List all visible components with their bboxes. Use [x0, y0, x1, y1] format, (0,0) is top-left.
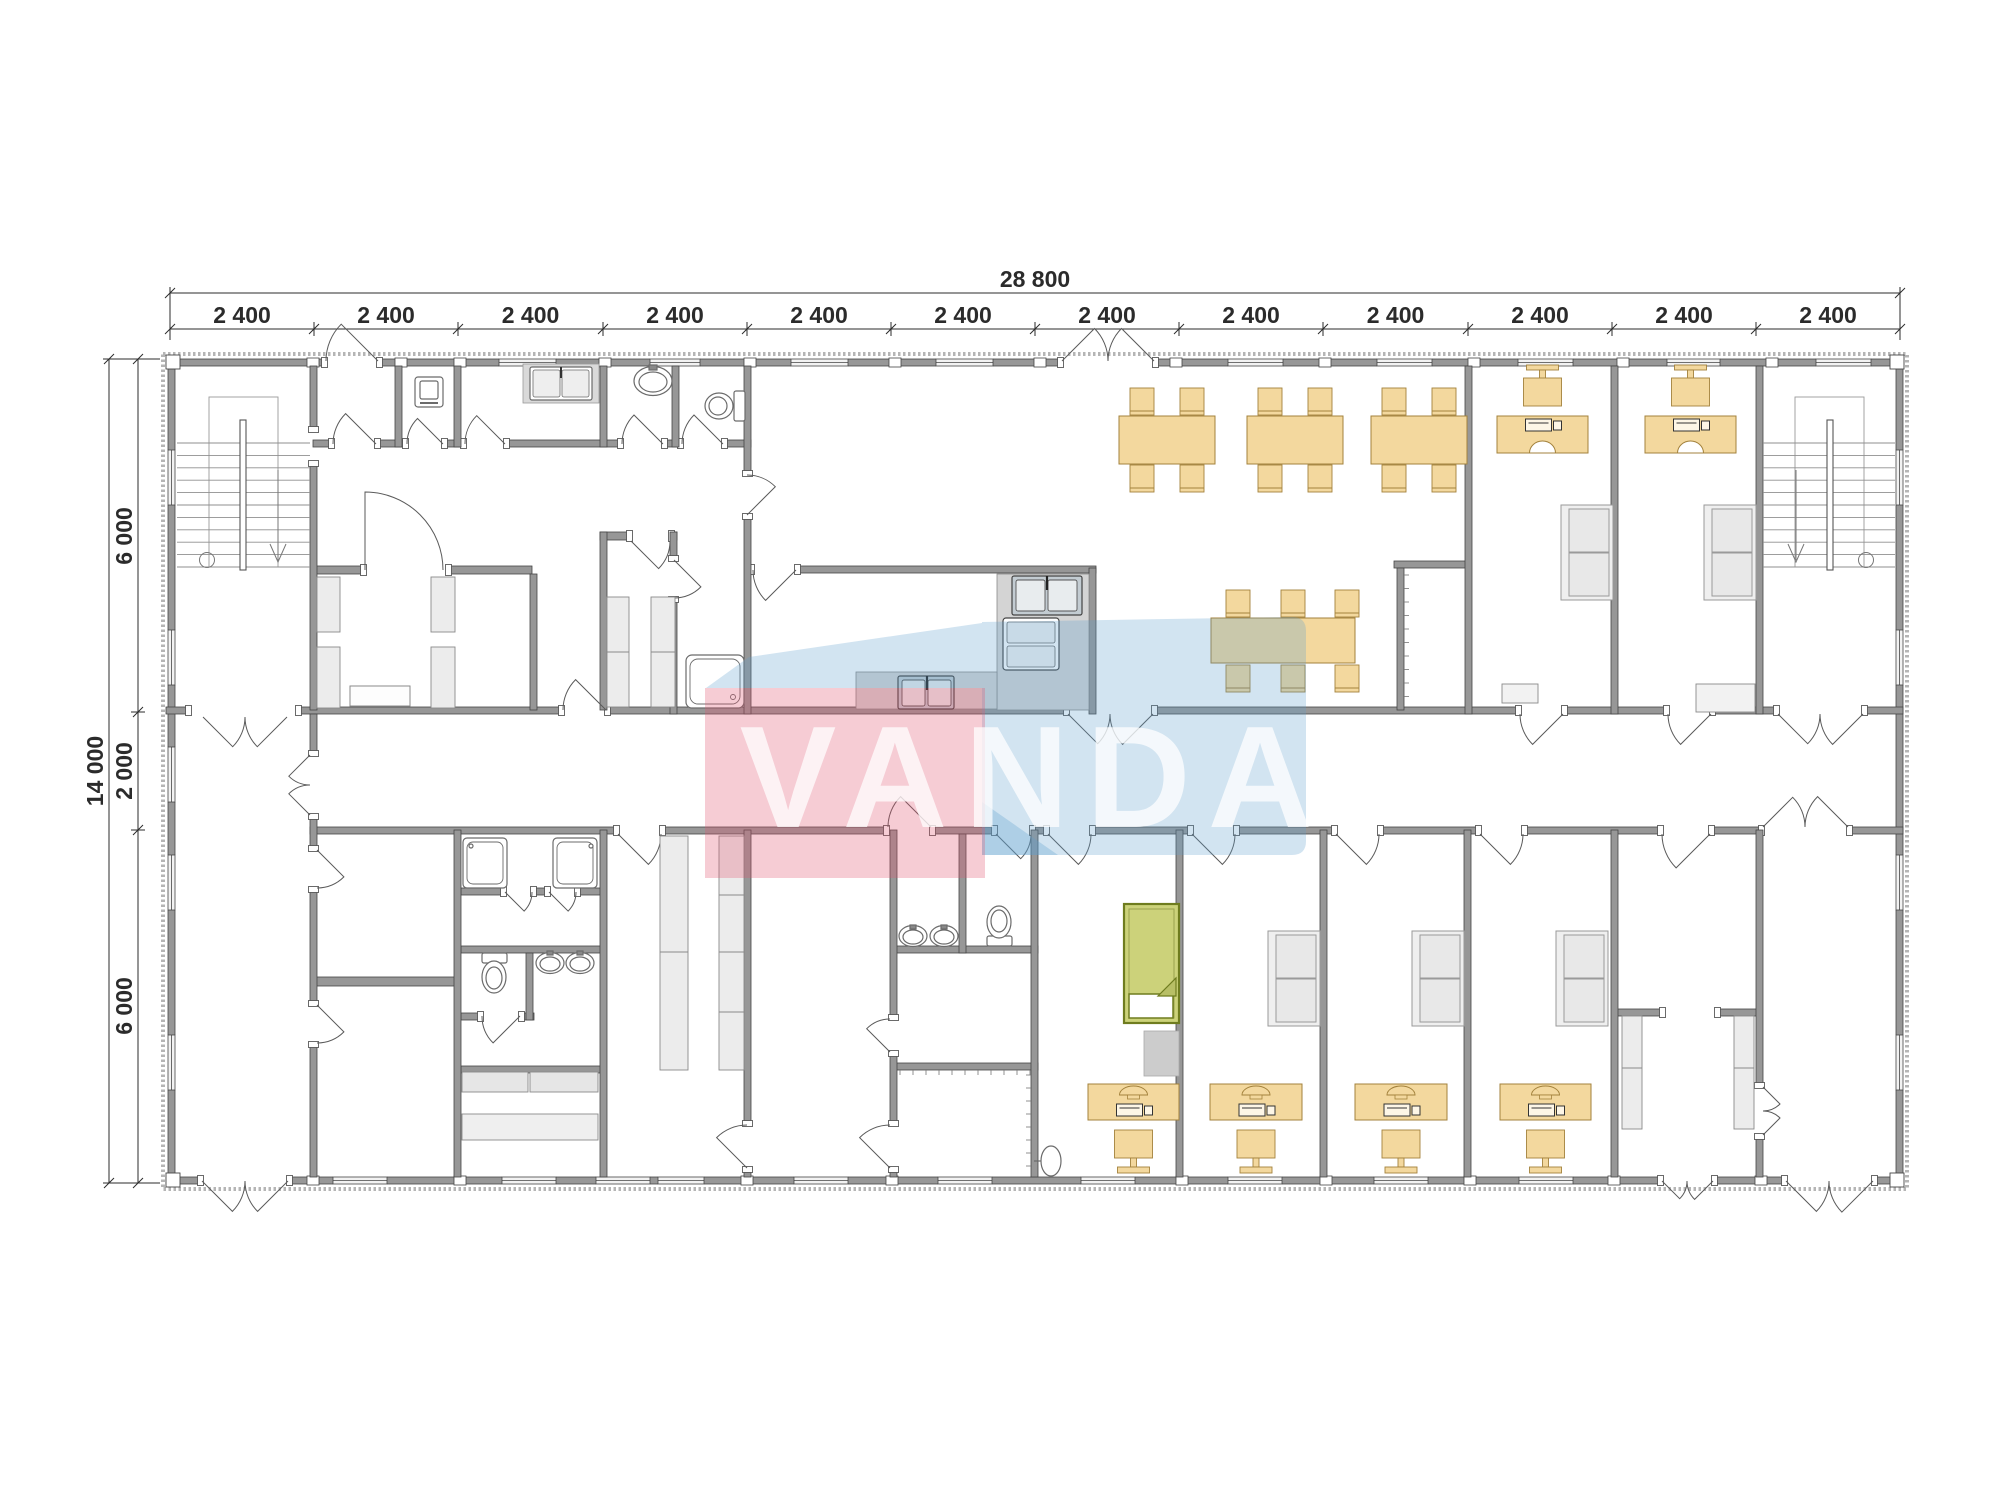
- svg-text:2 400: 2 400: [1078, 302, 1136, 328]
- svg-text:VANDA: VANDA: [740, 696, 1330, 858]
- svg-text:2 400: 2 400: [357, 302, 415, 328]
- svg-text:2 400: 2 400: [1511, 302, 1569, 328]
- svg-text:2 400: 2 400: [1222, 302, 1280, 328]
- svg-text:2 400: 2 400: [646, 302, 704, 328]
- svg-text:6 000: 6 000: [111, 977, 137, 1035]
- svg-text:2 400: 2 400: [213, 302, 271, 328]
- svg-text:2 000: 2 000: [111, 742, 137, 800]
- svg-text:28 800: 28 800: [1000, 266, 1070, 292]
- svg-text:14 000: 14 000: [82, 736, 108, 806]
- svg-text:6 000: 6 000: [111, 507, 137, 565]
- svg-text:2 400: 2 400: [1799, 302, 1857, 328]
- svg-text:2 400: 2 400: [934, 302, 992, 328]
- svg-text:2 400: 2 400: [790, 302, 848, 328]
- svg-text:2 400: 2 400: [1367, 302, 1425, 328]
- svg-text:2 400: 2 400: [502, 302, 560, 328]
- svg-text:2 400: 2 400: [1655, 302, 1713, 328]
